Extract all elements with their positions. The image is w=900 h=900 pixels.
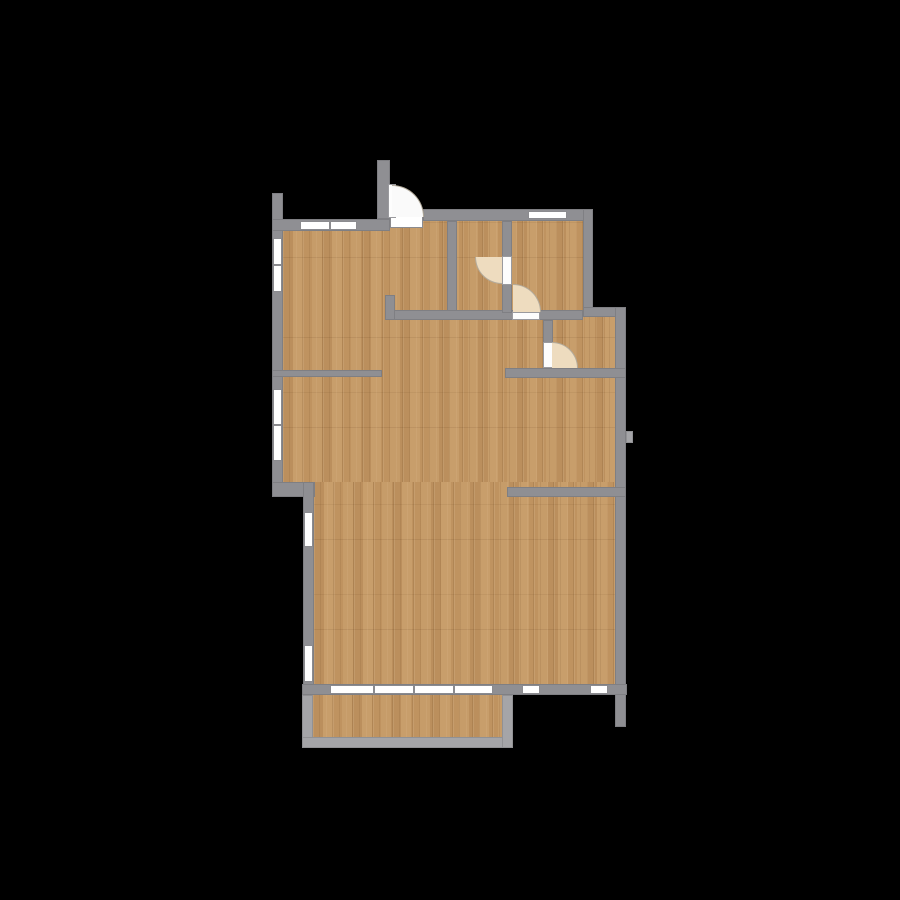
balcony-right-wall: [502, 695, 513, 748]
top-left-window: [300, 221, 357, 230]
left-upper-window-2: [273, 389, 282, 461]
wc-bottom-wall: [505, 368, 626, 378]
topright-room-door-leaf: [512, 312, 540, 320]
midroom-door-leaf: [502, 256, 512, 285]
hall-corner-stub: [385, 295, 395, 320]
left-lower-window-2: [304, 645, 313, 682]
hall-bottom-wall: [385, 310, 583, 320]
living-area-floor: [283, 312, 615, 482]
left-upper-window-1: [273, 238, 282, 292]
leftroom-bottom-wall: [272, 370, 382, 377]
bottom-window-right: [590, 685, 608, 694]
balcony-slider-window: [330, 685, 493, 694]
bottom-window-mid: [522, 685, 540, 694]
left-lower-window-1: [304, 512, 313, 547]
balcony-bottom-wall: [302, 737, 513, 748]
right-room-divider-wall: [507, 487, 626, 497]
balcony-slider-window-mullion: [413, 686, 415, 693]
entry-door-swing: [392, 185, 424, 217]
balcony-slider-window-mullion: [373, 686, 375, 693]
balcony-floor: [313, 695, 502, 737]
hall-right-wall: [447, 221, 457, 318]
right-wall-notch: [626, 431, 633, 443]
lower-living-floor: [314, 482, 615, 684]
upper-rooms-floor: [283, 221, 583, 312]
topright-room-right-wall: [583, 209, 593, 317]
top-wall-right: [423, 209, 593, 221]
floor-plan-screenshot: [0, 0, 900, 900]
floor-plan-canvas: [0, 0, 900, 900]
top-right-window: [528, 211, 567, 219]
top-left-window-mullion: [329, 222, 331, 229]
left-upper-window-1-mullion: [274, 264, 281, 266]
balcony-slider-window-mullion: [453, 686, 455, 693]
left-upper-window-2-mullion: [274, 424, 281, 426]
